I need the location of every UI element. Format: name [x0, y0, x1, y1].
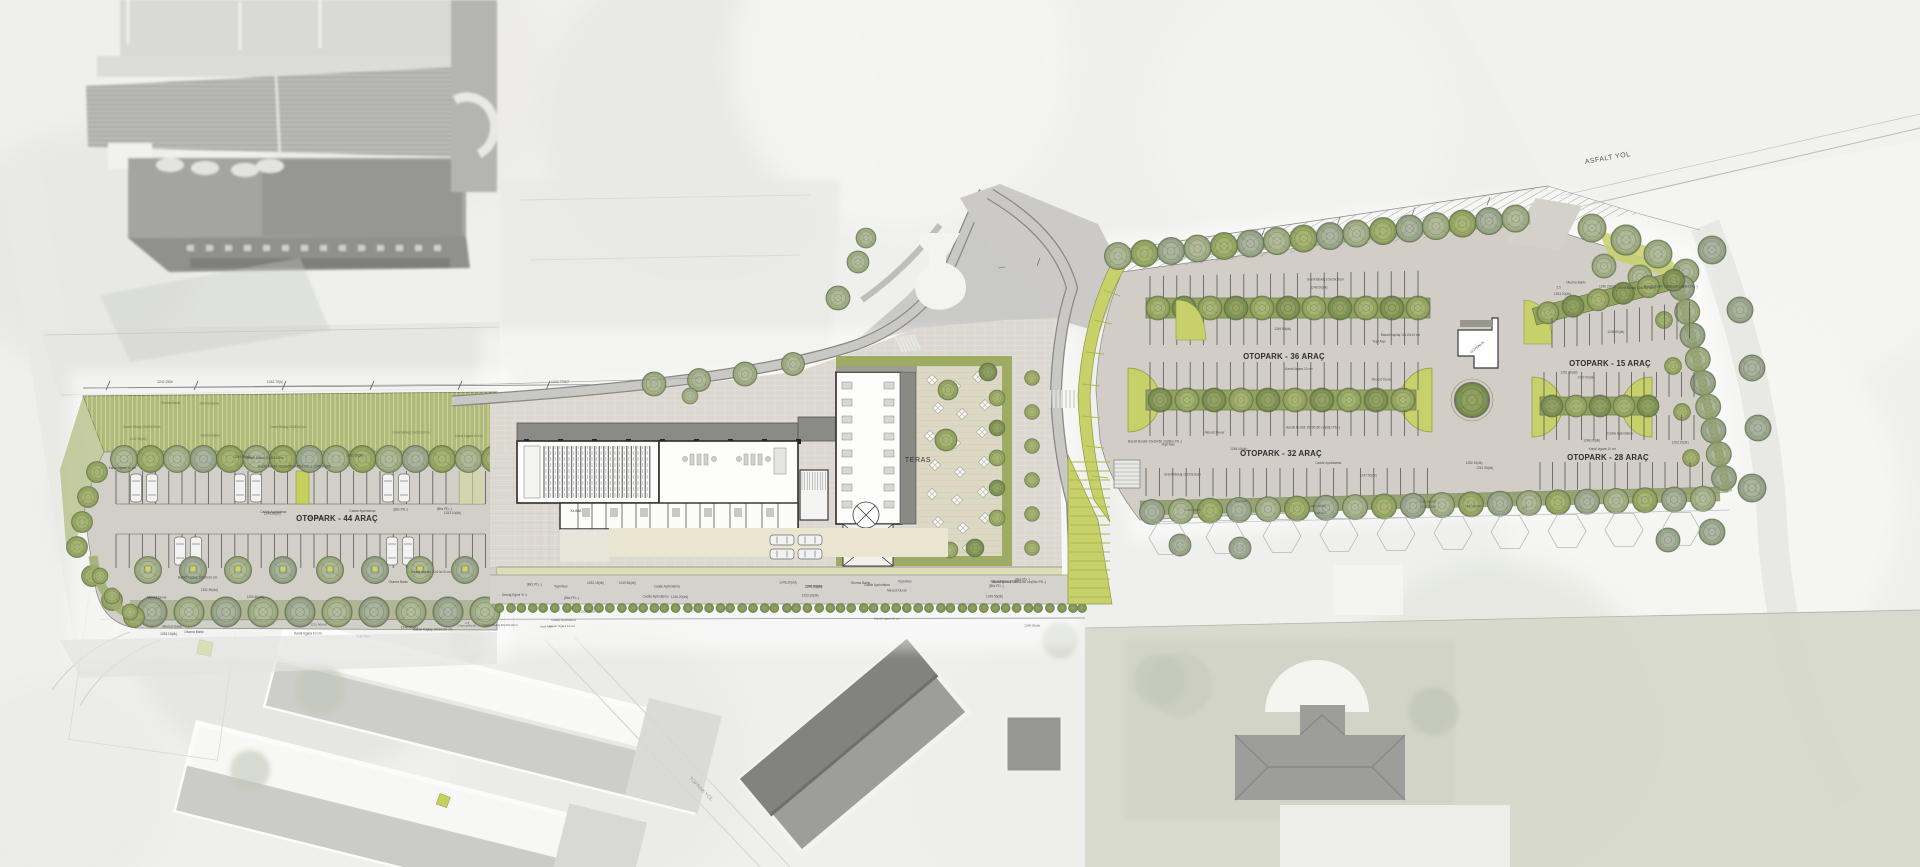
svg-text:Yeşil Alan: Yeşil Alan: [554, 584, 568, 588]
svg-text:1246.20(dd): 1246.20(dd): [1599, 285, 1616, 289]
svg-text:1246.20(dd): 1246.20(dd): [313, 465, 330, 469]
svg-text:1248.00(dk): 1248.00(dk): [1310, 286, 1327, 290]
svg-text:Mevcut Duvar: Mevcut Duvar: [1205, 431, 1226, 435]
svg-text:1251.90(dd): 1251.90(dd): [311, 622, 327, 626]
svg-text:1247.00(dk): 1247.00(dk): [130, 437, 147, 441]
svg-text:1246.20(dd): 1246.20(dd): [805, 585, 822, 589]
svg-text:2.5: 2.5: [465, 621, 470, 625]
svg-text:1251.90(dd): 1251.90(dd): [307, 516, 324, 520]
svg-text:1248.00(dk): 1248.00(dk): [401, 626, 418, 630]
svg-text:TERAS: TERAS: [905, 457, 931, 464]
svg-text:Kanal Izgara 10 cm: Kanal Izgara 10 cm: [109, 466, 137, 470]
svg-text:1251.90(dd): 1251.90(dd): [201, 588, 218, 592]
svg-text:1242.70(k): 1242.70(k): [267, 380, 283, 384]
svg-text:(Bkz.PD.-): (Bkz.PD.-): [527, 582, 542, 586]
svg-text:Yeşil Alan: Yeşil Alan: [898, 580, 912, 584]
svg-text:Cadde Aydınlatma: Cadde Aydınlatma: [349, 509, 375, 513]
svg-text:2.5: 2.5: [1523, 505, 1528, 509]
svg-text:Oturma Bankı: Oturma Bankı: [200, 434, 220, 438]
svg-text:1246.20(dd): 1246.20(dd): [671, 595, 688, 599]
svg-text:Kanal Izgara 10 cm: Kanal Izgara 10 cm: [455, 434, 483, 438]
svg-text:Bazalt Kaplaş 10x10x10 cm: Bazalt Kaplaş 10x10x10 cm: [413, 628, 453, 632]
svg-text:Bazalt Kaplaş 10x10x10 cm: Bazalt Kaplaş 10x10x10 cm: [1381, 333, 1421, 337]
svg-text:Cadde Aydınlatma: Cadde Aydınlatma: [1607, 432, 1633, 436]
svg-text:Mevcut Duvar: Mevcut Duvar: [162, 625, 183, 629]
svg-text:1247.00(dk): 1247.00(dk): [1465, 504, 1481, 508]
svg-text:KLIMA: KLIMA: [571, 509, 582, 513]
svg-text:1248.00(dk): 1248.00(dk): [1607, 330, 1624, 334]
svg-text:(Bkz.PD.-): (Bkz.PD.-): [989, 584, 1004, 588]
svg-text:Kanal Izgara 10 cm: Kanal Izgara 10 cm: [1589, 447, 1617, 451]
svg-text:Granit Blokaj 10x20x10cm: Granit Blokaj 10x20x10cm: [1307, 277, 1345, 281]
svg-text:OTOPARK - 15 ARAÇ: OTOPARK - 15 ARAÇ: [1569, 359, 1651, 368]
svg-text:Oturma Bankı: Oturma Bankı: [388, 580, 408, 584]
svg-text:1250.60(dd): 1250.60(dd): [247, 595, 264, 599]
svg-text:Yeşil Alan: Yeşil Alan: [540, 625, 553, 629]
svg-text:1253.10(dk): 1253.10(dk): [802, 593, 819, 597]
svg-text:1253.10(dk): 1253.10(dk): [444, 511, 461, 515]
svg-text:1253.10(dk): 1253.10(dk): [1554, 292, 1571, 296]
svg-text:Mevcut Duvar: Mevcut Duvar: [1372, 378, 1393, 382]
svg-text:2.5: 2.5: [1556, 286, 1561, 290]
svg-text:Bazalt Bordür 15x30x50 cm(Bkz.: Bazalt Bordür 15x30x50 cm(Bkz.PD.-): [992, 580, 1046, 584]
svg-text:1249.55(dk): 1249.55(dk): [1274, 327, 1291, 331]
svg-text:1253.10(dk): 1253.10(dk): [346, 453, 363, 457]
svg-text:Bazalt Kaplaş 10x10x10 cm: Bazalt Kaplaş 10x10x10 cm: [178, 575, 218, 579]
svg-text:Mevcut Duvar: Mevcut Duvar: [887, 589, 908, 593]
svg-text:1250.60(dd): 1250.60(dd): [579, 610, 595, 614]
svg-text:Oturma Bankı: Oturma Bankı: [184, 630, 204, 634]
svg-text:1248.00(dk): 1248.00(dk): [264, 512, 281, 516]
svg-text:1252.15(dk): 1252.15(dk): [1672, 440, 1689, 444]
svg-text:Cadde Aydınlatma: Cadde Aydınlatma: [551, 618, 576, 622]
svg-text:Mevcut Duvar: Mevcut Duvar: [147, 596, 168, 600]
svg-text:1248.00(dk): 1248.00(dk): [1230, 447, 1247, 451]
svg-text:OTOPARK - 32 ARAÇ: OTOPARK - 32 ARAÇ: [1240, 449, 1322, 458]
svg-text:Granit Blokaj 10x20x10cm: Granit Blokaj 10x20x10cm: [1164, 473, 1202, 477]
svg-text:1247.00(dk): 1247.00(dk): [1360, 474, 1377, 478]
svg-text:OTOPARK - 28 ARAÇ: OTOPARK - 28 ARAÇ: [1567, 453, 1649, 462]
svg-text:Bazalt Bordür 15x30x50 cm(Bkz.: Bazalt Bordür 15x30x50 cm(Bkz.PD.-): [258, 465, 312, 469]
svg-text:(Bkz.PD.-): (Bkz.PD.-): [564, 596, 579, 600]
svg-text:Cadde Aydınlatma: Cadde Aydınlatma: [654, 585, 680, 589]
svg-text:1253.10(dk): 1253.10(dk): [160, 632, 177, 636]
svg-text:OTOPARK - 36 ARAÇ: OTOPARK - 36 ARAÇ: [1243, 352, 1325, 361]
svg-text:Cadde Aydınlatma: Cadde Aydınlatma: [1315, 461, 1341, 465]
svg-text:Granit Blokaj 10x20x10cm: Granit Blokaj 10x20x10cm: [269, 425, 307, 429]
svg-text:1248.00(dk): 1248.00(dk): [1024, 624, 1040, 628]
svg-text:Oturma Bankı: Oturma Bankı: [200, 401, 220, 405]
svg-text:Granit Blokaj 10x20x10cm: Granit Blokaj 10x20x10cm: [246, 456, 284, 460]
svg-text:1251.90(dd): 1251.90(dd): [1560, 371, 1577, 375]
svg-text:Kanal Izgara 10 cm: Kanal Izgara 10 cm: [549, 624, 575, 628]
svg-text:1246.20(dd): 1246.20(dd): [779, 581, 796, 585]
svg-text:1251.90(dd): 1251.90(dd): [1476, 466, 1493, 470]
svg-text:Bazalt Bordür 15x30x50 cm(Bkz.: Bazalt Bordür 15x30x50 cm(Bkz.PD.-): [1286, 425, 1340, 429]
svg-text:Granit Blokaj 10x20x10cm: Granit Blokaj 10x20x10cm: [392, 431, 430, 435]
svg-text:Yeşil Alan: Yeşil Alan: [1372, 340, 1386, 344]
svg-text:Yeşil Alan: Yeşil Alan: [1314, 511, 1327, 515]
svg-text:1250.60(dd): 1250.60(dd): [1185, 508, 1201, 512]
svg-text:1242.250k: 1242.250k: [157, 380, 173, 384]
svg-text:1252.15(dk): 1252.15(dk): [587, 581, 604, 585]
svg-text:Oturma Bankı: Oturma Bankı: [1566, 281, 1586, 285]
svg-text:Cadde Aydınlatma: Cadde Aydınlatma: [864, 583, 890, 587]
svg-text:1249.55(dk): 1249.55(dk): [619, 581, 636, 585]
svg-text:Yeşil Alan: Yeşil Alan: [1161, 443, 1175, 447]
svg-text:1251.90(dd): 1251.90(dd): [1310, 504, 1326, 508]
svg-text:Kanal Izgara 10 cm: Kanal Izgara 10 cm: [294, 632, 322, 636]
svg-text:Yeşil Alan: Yeşil Alan: [1234, 499, 1247, 503]
svg-text:Granit Blokaj 10x20x10cm: Granit Blokaj 10x20x10cm: [483, 623, 519, 627]
svg-text:Oturma Bankı: Oturma Bankı: [161, 401, 181, 405]
svg-text:1247.00(dk): 1247.00(dk): [1577, 376, 1594, 380]
svg-text:(Bkz.PD.-): (Bkz.PD.-): [393, 508, 408, 512]
svg-text:Kanal Izgara 10 cm: Kanal Izgara 10 cm: [1285, 367, 1313, 371]
svg-text:1252.15(dk): 1252.15(dk): [1420, 504, 1436, 508]
svg-text:1250.60(dd): 1250.60(dd): [1420, 499, 1436, 503]
svg-text:Cadde Aydınlatma: Cadde Aydınlatma: [643, 595, 669, 599]
svg-text:Granit Blokaj 10x20x10cm: Granit Blokaj 10x20x10cm: [123, 425, 161, 429]
svg-text:1249.55(dk): 1249.55(dk): [986, 594, 1003, 598]
svg-text:Kanal Izgara 10 cm: Kanal Izgara 10 cm: [874, 616, 900, 620]
svg-text:Drenaj Eğimi % 4: Drenaj Eğimi % 4: [502, 593, 527, 597]
svg-text:1252.15(dk): 1252.15(dk): [1466, 461, 1483, 465]
svg-text:Bazalt Bordür 15x30x50 cm(Bkz.: Bazalt Bordür 15x30x50 cm(Bkz.PD.-): [1644, 284, 1698, 288]
svg-text:Bazalt Kaplaş 10x10x10 cm: Bazalt Kaplaş 10x10x10 cm: [411, 570, 451, 574]
svg-text:1248.00(dk): 1248.00(dk): [1583, 439, 1600, 443]
